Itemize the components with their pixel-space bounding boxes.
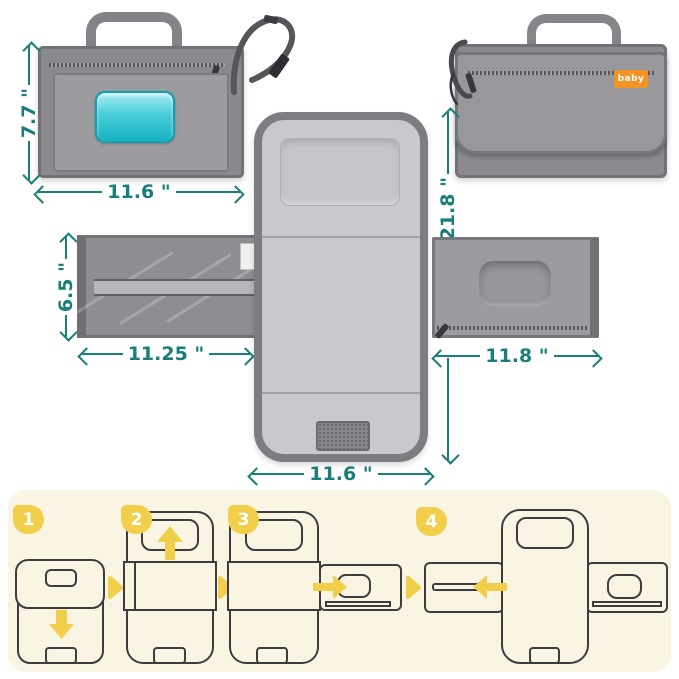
step-number-badge: 3: [228, 505, 259, 534]
dimension-label: 7.7 ": [18, 88, 40, 138]
wipes-dispenser-window: [95, 91, 175, 143]
care-label-tag: [240, 243, 255, 270]
fold-line: [262, 392, 420, 394]
velcro-patch: [316, 421, 370, 451]
arrow-right-icon: [209, 353, 250, 355]
arrow-left-icon: [252, 473, 304, 475]
step-number-badge: 1: [13, 505, 44, 534]
next-step-arrow-icon: [110, 578, 121, 597]
folded-bag-back-view: [38, 46, 244, 178]
step-number: 2: [131, 510, 143, 530]
arrow-down-icon: [49, 610, 74, 639]
fold-step-4-shape: [425, 510, 667, 663]
dimension-side-pocket-width: 11.8 ": [436, 344, 598, 368]
fold-step-1-shape: [16, 560, 104, 663]
dimension-mesh-width: 11.25 ": [82, 342, 250, 366]
folding-steps-diagram: [8, 490, 671, 672]
dimension-pad-width: 11.6 ": [252, 462, 430, 486]
carabiner-clip-icon: [443, 36, 477, 108]
arrow-right-icon: [554, 355, 598, 357]
bag-flap: baby: [455, 52, 667, 154]
arrow-up-icon: [65, 237, 67, 259]
step-number: 1: [23, 510, 35, 530]
arrow-right-icon: [378, 473, 430, 475]
arrow-up-icon: [447, 112, 449, 174]
dimension-label: 6.5 ": [55, 262, 77, 312]
dimension-bag-width: 11.6 ": [38, 180, 240, 204]
dimension-bag-height: 7.7 ": [14, 46, 44, 180]
dimension-label: 11.6 ": [107, 181, 170, 203]
head-pillow: [280, 138, 400, 206]
arrow-up-icon: [157, 526, 183, 560]
step-number-badge: 2: [121, 505, 152, 534]
elastic-band: [94, 279, 257, 296]
arrow-down-icon: [447, 358, 449, 460]
zipper: [49, 63, 225, 67]
step-number: 3: [238, 510, 250, 530]
step-number: 4: [426, 512, 438, 532]
arrow-left-icon: [38, 191, 102, 193]
product-infographic: 7.7 " 11.6 " baby 21.8 " 6.5 ": [0, 0, 679, 679]
brand-tag: baby: [614, 70, 648, 88]
dimension-label: 11.8 ": [485, 345, 548, 367]
step-number-badge: 4: [416, 507, 447, 536]
arrow-down-icon: [65, 315, 67, 337]
pocket-recess-window: [479, 261, 551, 306]
open-changing-pad: [254, 112, 428, 462]
zipper: [437, 326, 588, 330]
dimension-label: 11.6 ": [309, 463, 372, 485]
arrow-left-icon: [82, 353, 123, 355]
dimension-label: 11.25 ": [128, 343, 205, 365]
dimension-mesh-height: 6.5 ": [52, 237, 80, 337]
arrow-right-icon: [176, 191, 240, 193]
arrow-up-icon: [28, 46, 30, 85]
fold-line: [262, 236, 420, 238]
fold-step-3-shape: [228, 512, 401, 663]
mesh-pocket-wing: [77, 235, 256, 338]
next-step-arrow-icon: [408, 578, 419, 597]
folding-instructions-panel: 1 2 3 4: [8, 490, 671, 672]
arrow-down-icon: [28, 141, 30, 180]
hanging-strap-icon: [224, 8, 304, 100]
fold-step-2-shape: [124, 512, 216, 663]
arrow-left-icon: [436, 355, 480, 357]
zip-pocket-wing: [432, 237, 599, 338]
dimension-label: 21.8 ": [437, 177, 459, 240]
